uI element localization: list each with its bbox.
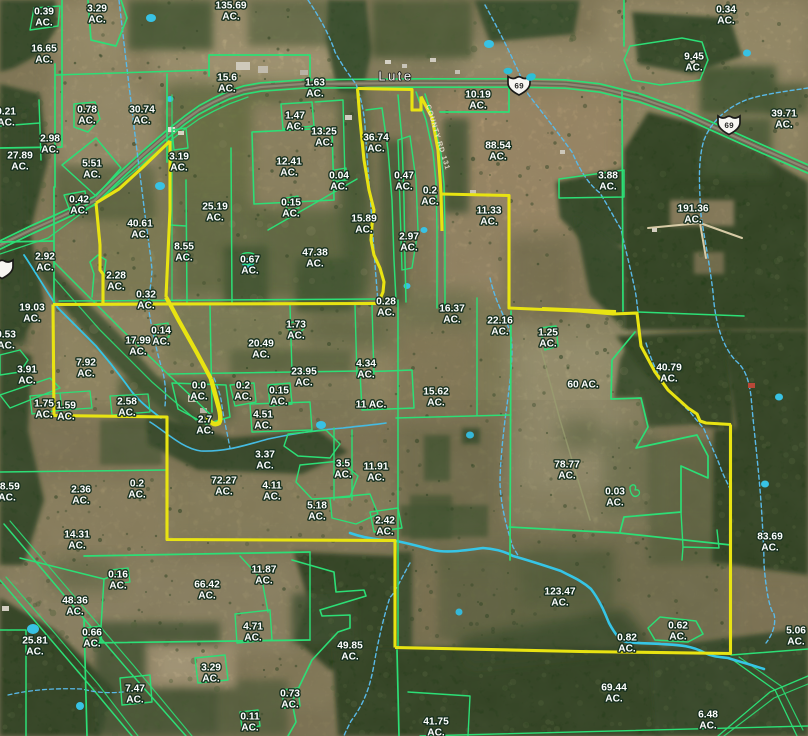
svg-text:14.31: 14.31: [64, 530, 90, 541]
svg-text:AC.: AC.: [252, 350, 270, 361]
svg-text:AC.: AC.: [66, 607, 84, 618]
svg-text:AC.: AC.: [0, 118, 15, 129]
svg-text:AC.: AC.: [137, 301, 155, 312]
svg-text:AC.: AC.: [83, 639, 101, 650]
svg-text:7.92: 7.92: [76, 358, 96, 369]
svg-text:41.75: 41.75: [423, 717, 449, 728]
svg-text:AC.: AC.: [241, 266, 259, 277]
svg-text:3.37: 3.37: [255, 450, 275, 461]
svg-text:Lute: Lute: [378, 68, 413, 83]
svg-text:AC.: AC.: [88, 15, 106, 26]
svg-text:47.38: 47.38: [302, 248, 328, 259]
svg-text:13.25: 13.25: [311, 127, 337, 138]
svg-text:AC.: AC.: [107, 282, 125, 293]
svg-text:AC.: AC.: [35, 18, 53, 29]
svg-text:AC.: AC.: [256, 461, 274, 472]
svg-text:40.61: 40.61: [127, 219, 153, 230]
svg-text:AC.: AC.: [152, 337, 170, 348]
svg-text:2.7: 2.7: [198, 415, 212, 426]
svg-text:10.19: 10.19: [465, 90, 491, 101]
svg-text:AC.: AC.: [480, 217, 498, 228]
svg-text:5.51: 5.51: [82, 159, 102, 170]
svg-text:AC.: AC.: [244, 633, 262, 644]
svg-text:1.73: 1.73: [286, 320, 306, 331]
svg-text:0.32: 0.32: [136, 290, 156, 301]
svg-text:0.42: 0.42: [69, 195, 89, 206]
svg-text:135.69: 135.69: [215, 1, 246, 12]
svg-text:2.36: 2.36: [71, 485, 91, 496]
svg-text:AC.: AC.: [222, 12, 240, 23]
svg-text:AC.: AC.: [606, 498, 624, 509]
svg-text:4.51: 4.51: [253, 410, 273, 421]
svg-text:25.81: 25.81: [22, 636, 48, 647]
svg-text:AC.: AC.: [170, 163, 188, 174]
svg-text:AC.: AC.: [23, 314, 41, 325]
svg-text:AC.: AC.: [341, 652, 359, 663]
svg-text:AC.: AC.: [306, 259, 324, 270]
svg-text:11.91: 11.91: [364, 462, 389, 473]
svg-text:AC.: AC.: [334, 470, 352, 481]
svg-text:AC.: AC.: [83, 170, 101, 181]
svg-text:AC.: AC.: [355, 225, 373, 236]
svg-text:3.91: 3.91: [17, 365, 37, 376]
svg-text:AC.: AC.: [443, 315, 461, 326]
svg-text:69: 69: [724, 122, 734, 131]
svg-text:AC.: AC.: [57, 412, 75, 423]
svg-text:AC.: AC.: [427, 728, 445, 736]
svg-text:AC.: AC.: [618, 644, 636, 655]
svg-text:AC.: AC.: [357, 370, 375, 381]
svg-text:AC.: AC.: [255, 576, 273, 587]
svg-text:11.33: 11.33: [477, 206, 502, 217]
svg-text:0.15: 0.15: [281, 198, 301, 209]
svg-text:0.14: 0.14: [151, 326, 171, 337]
svg-text:40.79: 40.79: [656, 363, 682, 374]
svg-text:0.2: 0.2: [236, 381, 250, 392]
svg-text:1.75: 1.75: [34, 399, 54, 410]
svg-text:5.06: 5.06: [786, 626, 806, 637]
svg-text:15.6: 15.6: [217, 73, 237, 84]
svg-text:18.59: 18.59: [0, 482, 20, 493]
svg-text:88.54: 88.54: [485, 141, 511, 152]
svg-text:AC.: AC.: [684, 215, 702, 226]
svg-text:0.04: 0.04: [329, 171, 349, 182]
svg-text:3.5: 3.5: [336, 459, 350, 470]
svg-text:AC.: AC.: [126, 695, 144, 706]
svg-text:AC.: AC.: [295, 378, 313, 389]
svg-text:39.71: 39.71: [771, 109, 797, 120]
svg-text:3.29: 3.29: [87, 4, 107, 15]
svg-text:1.63: 1.63: [305, 78, 325, 89]
svg-text:AC.: AC.: [421, 197, 439, 208]
svg-text:0.03: 0.03: [605, 487, 625, 498]
svg-text:2.98: 2.98: [40, 134, 60, 145]
svg-text:AC.: AC.: [761, 543, 779, 554]
svg-text:0.78: 0.78: [77, 105, 97, 116]
svg-text:AC.: AC.: [775, 120, 793, 131]
svg-text:AC.: AC.: [330, 182, 348, 193]
svg-text:AC.: AC.: [377, 308, 395, 319]
svg-text:AC.: AC.: [717, 16, 735, 27]
svg-text:1.25: 1.25: [538, 328, 558, 339]
svg-text:AC.: AC.: [287, 331, 305, 342]
svg-text:2.58: 2.58: [117, 397, 137, 408]
svg-text:AC.: AC.: [660, 374, 678, 385]
svg-text:AC.: AC.: [263, 492, 281, 503]
svg-text:36.74: 36.74: [363, 133, 389, 144]
svg-text:30.74: 30.74: [129, 105, 155, 116]
svg-text:AC.: AC.: [605, 694, 623, 705]
svg-text:AC.: AC.: [68, 541, 86, 552]
svg-text:AC.: AC.: [427, 398, 445, 409]
svg-text:AC.: AC.: [539, 339, 557, 350]
svg-text:AC.: AC.: [198, 591, 216, 602]
svg-text:AC.: AC.: [11, 162, 29, 173]
svg-text:AC.: AC.: [18, 376, 36, 387]
svg-text:AC.: AC.: [489, 152, 507, 163]
svg-text:AC.: AC.: [202, 674, 220, 685]
svg-text:AC.: AC.: [190, 392, 208, 403]
svg-text:15.62: 15.62: [423, 387, 449, 398]
svg-text:AC.: AC.: [254, 421, 272, 432]
svg-text:1.47: 1.47: [285, 111, 305, 122]
svg-text:AC.: AC.: [376, 527, 394, 538]
svg-text:23.95: 23.95: [291, 367, 317, 378]
svg-text:AC.: AC.: [77, 369, 95, 380]
svg-text:69: 69: [514, 83, 524, 92]
svg-text:7.47: 7.47: [125, 684, 145, 695]
svg-text:AC.: AC.: [286, 122, 304, 133]
svg-text:17.99: 17.99: [125, 336, 151, 347]
svg-text:AC.: AC.: [196, 426, 214, 437]
svg-text:AC.: AC.: [26, 647, 44, 658]
svg-text:AC.: AC.: [315, 138, 333, 149]
svg-text:3.19: 3.19: [169, 152, 189, 163]
svg-text:AC.: AC.: [215, 487, 233, 498]
svg-text:2.42: 2.42: [375, 516, 395, 527]
svg-text:AC.: AC.: [469, 101, 487, 112]
svg-text:0.53: 0.53: [0, 330, 16, 341]
svg-text:AC.: AC.: [491, 327, 509, 338]
svg-text:83.69: 83.69: [757, 532, 783, 543]
svg-text:AC.: AC.: [206, 213, 224, 224]
svg-text:9.45: 9.45: [684, 52, 704, 63]
svg-text:AC.: AC.: [280, 168, 298, 179]
svg-text:0.34: 0.34: [716, 5, 736, 16]
svg-text:AC.: AC.: [787, 637, 805, 648]
svg-text:AC.: AC.: [35, 410, 53, 421]
svg-text:66.42: 66.42: [194, 580, 220, 591]
svg-text:3.88: 3.88: [598, 171, 618, 182]
svg-text:0.67: 0.67: [240, 255, 260, 266]
svg-text:AC.: AC.: [308, 512, 326, 523]
svg-text:AC.: AC.: [70, 206, 88, 217]
svg-text:AC.: AC.: [78, 116, 96, 127]
svg-text:4.11: 4.11: [262, 481, 282, 492]
svg-text:0.2: 0.2: [130, 479, 144, 490]
svg-text:AC.: AC.: [0, 493, 16, 504]
svg-text:25.19: 25.19: [202, 202, 228, 213]
svg-text:AC.: AC.: [118, 408, 136, 419]
svg-text:60 AC.: 60 AC.: [567, 380, 598, 391]
svg-text:AC.: AC.: [0, 341, 15, 352]
svg-text:1.59: 1.59: [56, 401, 76, 412]
svg-text:27.89: 27.89: [7, 151, 33, 162]
svg-text:0.0: 0.0: [192, 381, 206, 392]
svg-text:22.16: 22.16: [487, 316, 513, 327]
svg-text:2.92: 2.92: [35, 252, 55, 263]
svg-text:AC.: AC.: [367, 144, 385, 155]
svg-text:AC.: AC.: [133, 116, 151, 127]
svg-text:16.37: 16.37: [439, 304, 465, 315]
svg-text:AC.: AC.: [241, 723, 259, 734]
svg-text:AC.: AC.: [131, 230, 149, 241]
svg-text:AC.: AC.: [367, 473, 385, 484]
svg-text:0.39: 0.39: [34, 7, 54, 18]
svg-text:0.28: 0.28: [376, 297, 396, 308]
svg-text:16.65: 16.65: [31, 44, 57, 55]
svg-text:19.03: 19.03: [19, 303, 45, 314]
svg-text:0.73: 0.73: [280, 689, 300, 700]
svg-text:5.18: 5.18: [307, 501, 327, 512]
svg-text:2.97: 2.97: [399, 232, 419, 243]
svg-text:AC.: AC.: [128, 490, 146, 501]
svg-text:20.49: 20.49: [248, 339, 274, 350]
svg-text:AC.: AC.: [281, 700, 299, 711]
svg-text:0.2: 0.2: [423, 186, 437, 197]
svg-text:11.87: 11.87: [252, 565, 277, 576]
svg-text:78.77: 78.77: [554, 460, 580, 471]
svg-text:2.28: 2.28: [106, 271, 126, 282]
svg-text:0.21: 0.21: [0, 107, 16, 118]
svg-text:AC.: AC.: [72, 496, 90, 507]
svg-text:12.41: 12.41: [276, 157, 302, 168]
svg-text:AC.: AC.: [234, 392, 252, 403]
svg-text:6.48: 6.48: [698, 710, 718, 721]
svg-text:AC.: AC.: [175, 253, 193, 264]
svg-text:AC.: AC.: [282, 209, 300, 220]
svg-text:AC.: AC.: [685, 63, 703, 74]
svg-text:0.16: 0.16: [108, 570, 128, 581]
svg-text:AC.: AC.: [699, 721, 717, 732]
svg-text:11 AC.: 11 AC.: [356, 400, 387, 411]
svg-text:72.27: 72.27: [211, 476, 237, 487]
svg-text:AC.: AC.: [306, 89, 324, 100]
svg-text:AC.: AC.: [109, 581, 127, 592]
svg-text:AC.: AC.: [35, 55, 53, 66]
svg-text:AC.: AC.: [218, 84, 236, 95]
svg-text:123.47: 123.47: [544, 587, 575, 598]
svg-text:AC.: AC.: [599, 182, 617, 193]
svg-text:AC.: AC.: [395, 182, 413, 193]
svg-text:AC.: AC.: [129, 347, 147, 358]
svg-text:0.62: 0.62: [668, 621, 688, 632]
svg-text:0.11: 0.11: [240, 712, 260, 723]
svg-text:AC.: AC.: [558, 471, 576, 482]
svg-text:0.15: 0.15: [269, 386, 289, 397]
svg-text:0.82: 0.82: [617, 633, 637, 644]
svg-text:AC.: AC.: [41, 145, 59, 156]
svg-text:48.36: 48.36: [62, 596, 88, 607]
svg-text:4.71: 4.71: [243, 622, 263, 633]
svg-text:4.34: 4.34: [356, 359, 376, 370]
svg-text:AC.: AC.: [669, 632, 687, 643]
svg-text:8.55: 8.55: [174, 242, 194, 253]
svg-text:191.36: 191.36: [677, 204, 708, 215]
svg-text:0.47: 0.47: [394, 171, 414, 182]
svg-text:AC.: AC.: [551, 598, 569, 609]
svg-text:0.66: 0.66: [82, 628, 102, 639]
svg-text:69.44: 69.44: [601, 683, 627, 694]
svg-text:3.29: 3.29: [201, 663, 221, 674]
svg-text:AC.: AC.: [270, 397, 288, 408]
svg-text:15.89: 15.89: [351, 214, 377, 225]
svg-text:AC.: AC.: [36, 263, 54, 274]
svg-text:49.85: 49.85: [337, 641, 363, 652]
svg-text:AC.: AC.: [400, 243, 418, 254]
